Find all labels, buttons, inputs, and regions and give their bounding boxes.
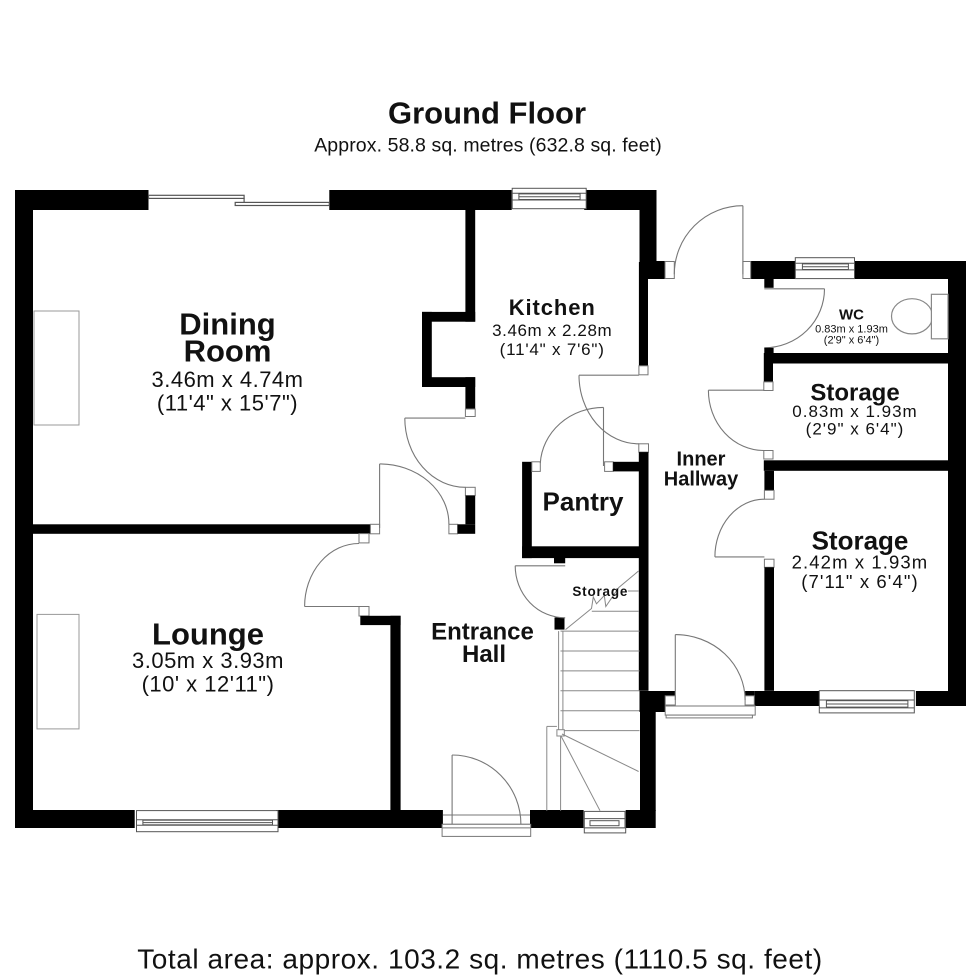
- svg-text:Lounge: Lounge: [152, 616, 264, 651]
- svg-text:Hallway: Hallway: [664, 468, 739, 490]
- svg-text:3.46m x 4.74m: 3.46m x 4.74m: [151, 367, 303, 392]
- svg-text:Ground Floor: Ground Floor: [388, 96, 586, 131]
- svg-text:Total area: approx. 103.2 sq.: Total area: approx. 103.2 sq. metres (11…: [137, 944, 822, 975]
- svg-text:0.83m x 1.93m: 0.83m x 1.93m: [792, 402, 917, 421]
- svg-text:Kitchen: Kitchen: [509, 295, 596, 320]
- svg-text:Approx. 58.8 sq. metres (632.8: Approx. 58.8 sq. metres (632.8 sq. feet): [314, 135, 662, 157]
- svg-text:Pantry: Pantry: [543, 487, 624, 517]
- svg-text:(11'4" x 7'6"): (11'4" x 7'6"): [500, 340, 605, 359]
- svg-text:3.05m x 3.93m: 3.05m x 3.93m: [132, 648, 284, 673]
- svg-text:(10' x 12'11"): (10' x 12'11"): [142, 671, 275, 696]
- svg-text:(2'9" x 6'4"): (2'9" x 6'4"): [824, 335, 879, 347]
- svg-text:(2'9" x 6'4"): (2'9" x 6'4"): [806, 419, 905, 438]
- svg-text:2.42m x 1.93m: 2.42m x 1.93m: [792, 552, 929, 573]
- svg-text:Storage: Storage: [572, 584, 628, 599]
- svg-text:(7'11" x 6'4"): (7'11" x 6'4"): [801, 571, 919, 592]
- svg-text:(11'4" x 15'7"): (11'4" x 15'7"): [157, 391, 298, 416]
- svg-text:Hall: Hall: [462, 641, 506, 668]
- svg-text:Room: Room: [184, 333, 272, 368]
- svg-text:3.46m x 2.28m: 3.46m x 2.28m: [492, 321, 612, 340]
- svg-text:WC: WC: [839, 307, 864, 324]
